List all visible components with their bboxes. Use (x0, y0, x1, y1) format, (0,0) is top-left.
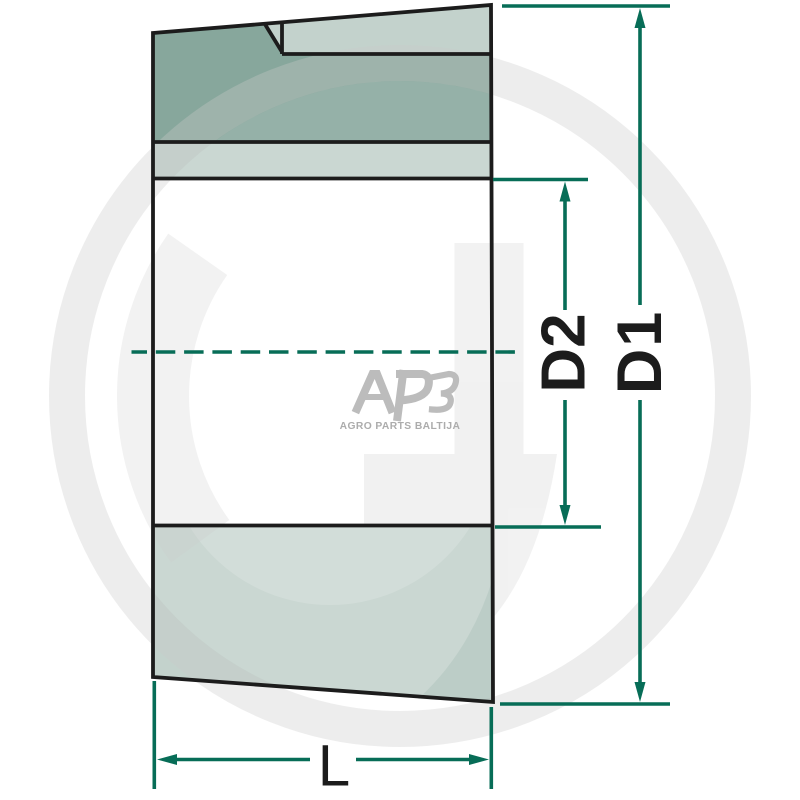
svg-text:L: L (318, 734, 350, 799)
svg-text:D2: D2 (530, 313, 599, 392)
svg-text:D1: D1 (605, 310, 675, 395)
svg-text:AGRO PARTS BALTIJA: AGRO PARTS BALTIJA (340, 421, 461, 432)
